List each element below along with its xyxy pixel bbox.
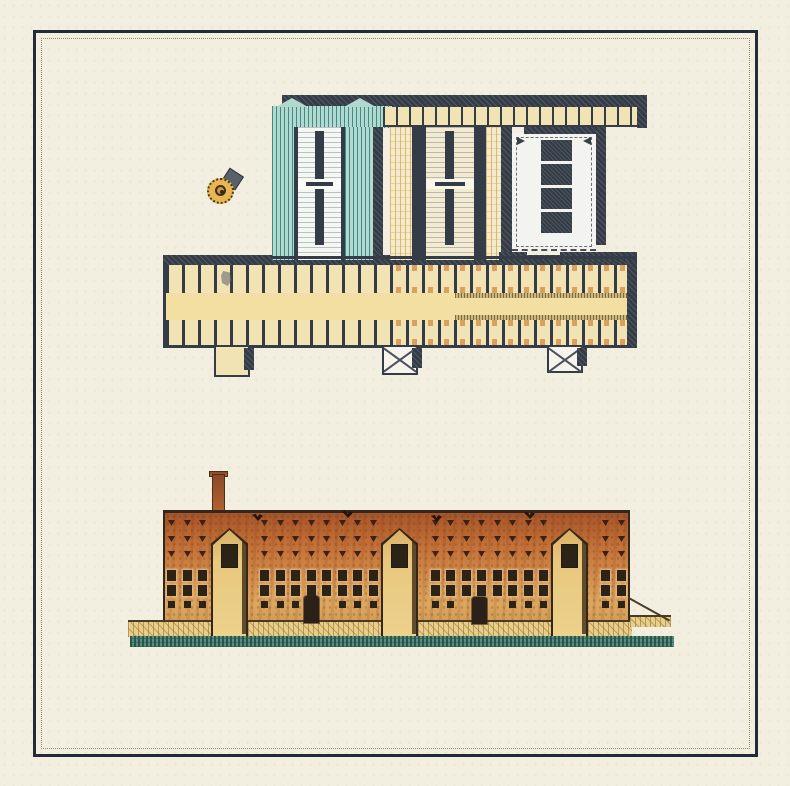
basement-window — [447, 601, 454, 608]
framed-window — [167, 585, 176, 596]
basement-window — [432, 601, 439, 608]
scanned-page — [0, 0, 790, 786]
plan-tower-flank-wall — [244, 348, 254, 370]
stair-tower — [211, 528, 248, 638]
room-wall-left — [422, 127, 426, 260]
framed-window — [322, 570, 331, 581]
room-mid-bar — [306, 182, 333, 186]
ground-line — [130, 636, 674, 647]
framed-window — [183, 570, 192, 581]
plan-rightroom-wall-left — [501, 127, 512, 261]
basement-window — [354, 601, 361, 608]
stair-tower-shadow — [412, 542, 416, 634]
stair-tower-window — [221, 544, 238, 568]
framed-window — [198, 570, 207, 581]
plan-teal-pier-left — [272, 127, 294, 260]
room-wall-right — [341, 127, 345, 260]
framed-window — [167, 570, 176, 581]
room-pier-lower — [315, 189, 324, 245]
millstone-wheel — [207, 178, 234, 204]
plan-rightroom-dashed-bottom — [512, 249, 596, 251]
stair-tower-window — [391, 544, 408, 568]
stair-tower-window — [561, 544, 578, 568]
plan-cream-wall-1 — [412, 127, 422, 260]
framed-window — [431, 585, 440, 596]
entrance-door — [304, 596, 319, 623]
plan-column-stack-block — [541, 164, 572, 185]
plan-teal-gable-strip — [272, 106, 392, 128]
framed-window — [307, 570, 316, 581]
framed-window — [539, 570, 548, 581]
framed-window — [493, 570, 502, 581]
framed-window — [353, 585, 362, 596]
room-mid-band — [426, 179, 474, 189]
plan-top-wall-corner — [637, 95, 647, 128]
framed-window — [338, 570, 347, 581]
framed-window — [307, 585, 316, 596]
plan-column-stack-block — [541, 212, 572, 233]
framed-window — [260, 570, 269, 581]
plan-tower-flank-wall — [412, 348, 422, 368]
framed-window — [369, 585, 378, 596]
plan-band-left-edge — [163, 263, 166, 345]
basement-window — [370, 601, 377, 608]
basement-window — [199, 601, 206, 608]
plan-capitals-row3 — [393, 320, 627, 326]
plan-cream-wall-2 — [478, 127, 486, 260]
framed-window — [493, 585, 502, 596]
room-mid-band — [298, 179, 341, 189]
millstone-eye — [220, 190, 224, 194]
plan-column-stack-block — [541, 188, 572, 209]
framed-window — [446, 585, 455, 596]
plan-room-cream-bay — [422, 127, 478, 260]
stair-tower — [551, 528, 588, 638]
plan-tower-flank-wall — [577, 348, 587, 366]
plan-upper-bottom-line — [272, 256, 637, 259]
room-pier-upper — [445, 131, 454, 179]
plan-divider-wall — [373, 127, 383, 260]
basement-window — [168, 601, 175, 608]
plan-teal-gable-right — [344, 98, 376, 107]
framed-window — [369, 570, 378, 581]
framed-window — [477, 570, 486, 581]
millstone-hub — [215, 185, 226, 196]
framed-window — [508, 570, 517, 581]
plan-corridor-hatch-top — [455, 293, 627, 298]
direction-arrow-mark — [583, 137, 591, 145]
plan-rightroom-wall-right — [596, 127, 606, 245]
plan-capitals-row2 — [393, 287, 627, 293]
framed-window — [260, 585, 269, 596]
framed-window — [477, 585, 486, 596]
basement-window — [602, 601, 609, 608]
framed-window — [508, 585, 517, 596]
plan-cream-pier-right — [486, 127, 501, 260]
room-mid-bar — [435, 182, 465, 186]
room-pier-lower — [445, 189, 454, 245]
framed-window — [462, 585, 471, 596]
room-pier-upper — [315, 131, 324, 179]
framed-window — [353, 570, 362, 581]
framed-window — [601, 570, 610, 581]
framed-window — [291, 585, 300, 596]
framed-window — [539, 585, 548, 596]
framed-window — [462, 570, 471, 581]
framed-window — [198, 585, 207, 596]
framed-window — [291, 570, 300, 581]
basement-window — [292, 601, 299, 608]
framed-window — [524, 585, 533, 596]
basement-window — [509, 601, 516, 608]
direction-arrow-mark — [517, 137, 525, 145]
stair-tower-shadow — [242, 542, 246, 634]
framed-window — [276, 570, 285, 581]
basement-window — [618, 601, 625, 608]
entrance-door — [472, 597, 487, 624]
basement-window — [261, 601, 268, 608]
framed-window — [446, 570, 455, 581]
framed-window — [338, 585, 347, 596]
drawing-stage — [0, 0, 790, 786]
plan-room-teal-bay — [294, 127, 345, 260]
framed-window — [617, 585, 626, 596]
plan-capitals-row1 — [393, 265, 627, 271]
framed-window — [276, 585, 285, 596]
chimney — [212, 474, 225, 514]
plan-band-right-wall — [627, 255, 637, 347]
basement-window — [525, 601, 532, 608]
framed-window — [524, 570, 533, 581]
framed-window — [617, 570, 626, 581]
stair-tower — [381, 528, 418, 638]
stair-tower-shadow — [582, 542, 586, 634]
plan-rightroom-wall-top — [524, 127, 596, 134]
framed-window — [431, 570, 440, 581]
framed-window — [183, 585, 192, 596]
framed-window — [322, 585, 331, 596]
basement-window — [540, 601, 547, 608]
plan-column-stack-block — [541, 140, 572, 161]
basement-window — [184, 601, 191, 608]
plan-teal-pier-mid — [345, 127, 373, 260]
framed-window — [601, 585, 610, 596]
room-wall-left — [294, 127, 298, 260]
plan-cream-pier-left — [390, 127, 412, 260]
plan-cream-colonnade-strip — [383, 107, 637, 127]
plan-teal-gable-left — [276, 98, 308, 107]
basement-window — [339, 601, 346, 608]
basement-window — [277, 601, 284, 608]
